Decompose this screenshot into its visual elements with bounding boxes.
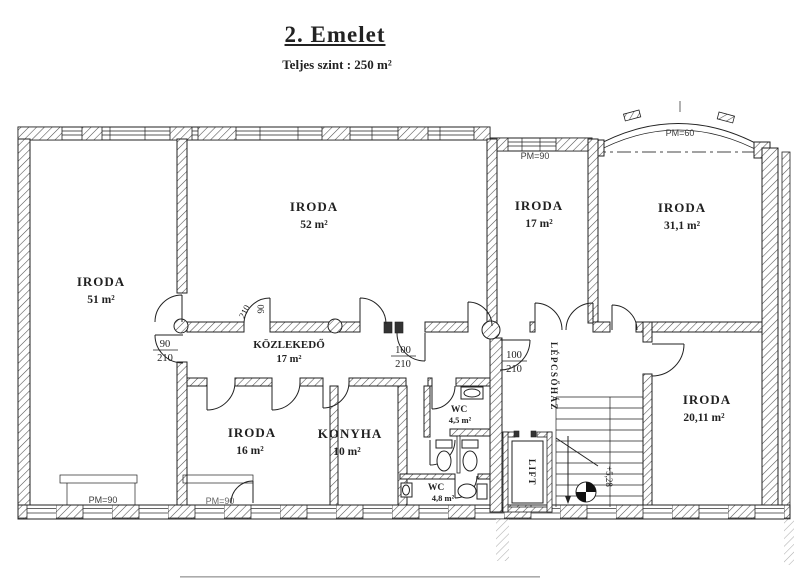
page-subtitle: Teljes szint : 250 m²: [212, 57, 462, 73]
wall: [18, 505, 790, 519]
lift-shaft: LIFT: [503, 431, 552, 512]
parapet-label-top: PM=90: [521, 151, 550, 161]
scan-artifact: [784, 519, 794, 565]
svg-text:100: 100: [395, 345, 411, 356]
room-label-wc48: WC: [428, 483, 445, 493]
svg-text:210: 210: [506, 364, 522, 375]
svg-text:90: 90: [160, 339, 171, 350]
door-arc: [612, 305, 637, 330]
svg-text:90: 90: [256, 304, 266, 314]
wall: [18, 139, 30, 505]
svg-text:100: 100: [506, 350, 522, 361]
level-marker-icon: [576, 482, 596, 502]
staircase: +5,28: [556, 397, 643, 507]
column: [174, 319, 188, 333]
door-post: [395, 322, 403, 333]
room-area-wc48: 4,8 m²: [432, 493, 455, 503]
door-arc: [360, 298, 386, 326]
room-label-wc45: WC: [451, 405, 468, 415]
floorplan-page: 2. Emelet Teljes szint : 250 m²: [0, 0, 800, 581]
svg-text:210: 210: [237, 303, 252, 320]
parapet-label-bottom-mid: PM=90: [206, 496, 235, 506]
room-label-konyha: KONYHA: [318, 426, 383, 441]
door-size-staircase: 100 210: [502, 350, 527, 375]
level-value: +5,28: [604, 466, 614, 487]
lift-label: LIFT: [527, 459, 537, 486]
door-size-left: 90 210: [153, 339, 178, 364]
door-arc: [272, 382, 300, 410]
arrow-head-icon: [565, 496, 571, 504]
svg-text:210: 210: [395, 359, 411, 370]
room-label-iroda31: IRODA: [658, 200, 706, 215]
scan-artifact: [496, 519, 509, 561]
wall: [762, 148, 778, 512]
room-area-iroda52: 52 m²: [300, 219, 328, 231]
room-area-konyha: 10 m²: [333, 446, 361, 458]
parapet-label-bottom-left: PM=90: [89, 495, 118, 505]
door-arc: [652, 344, 684, 376]
column: [328, 319, 342, 333]
floorplan-drawing: LIFT +5,28: [0, 0, 800, 581]
room-label-lepcsohaz: LÉPCSŐHÁZ: [549, 342, 559, 411]
sink-icon: [401, 483, 412, 497]
door-arc: [155, 295, 182, 322]
page-title: 2. Emelet: [185, 22, 485, 48]
door-post: [384, 322, 392, 333]
toilet-icon: [458, 484, 487, 499]
room-label-iroda51: IRODA: [77, 274, 125, 289]
room-area-iroda16: 16 m²: [236, 445, 264, 457]
sink-icon: [461, 387, 483, 399]
toilet-icon: [436, 440, 452, 471]
room-area-iroda51: 51 m²: [87, 294, 115, 306]
column: [482, 321, 500, 339]
room-area-iroda20: 20,11 m²: [683, 412, 725, 424]
door-arc: [535, 303, 562, 330]
scan-artifact: [180, 576, 540, 578]
room-area-kozlekedo: 17 m²: [276, 354, 301, 365]
svg-text:210: 210: [157, 353, 173, 364]
door-arc: [207, 382, 235, 410]
toilet-icon: [462, 440, 478, 471]
room-label-kozlekedo: KÖZLEKEDŐ: [253, 338, 325, 351]
room-area-iroda17: 17 m²: [525, 218, 553, 230]
room-area-wc45: 4,5 m²: [449, 415, 472, 425]
room-area-iroda31: 31,1 m²: [664, 220, 701, 232]
exterior-walls: [18, 101, 794, 578]
room-label-iroda16: IRODA: [228, 425, 276, 440]
room-label-iroda20: IRODA: [683, 392, 731, 407]
parapet-label-arc: PM=60: [666, 128, 695, 138]
room-label-iroda17: IRODA: [515, 198, 563, 213]
wall: [782, 152, 790, 512]
room-label-iroda52: IRODA: [290, 199, 338, 214]
